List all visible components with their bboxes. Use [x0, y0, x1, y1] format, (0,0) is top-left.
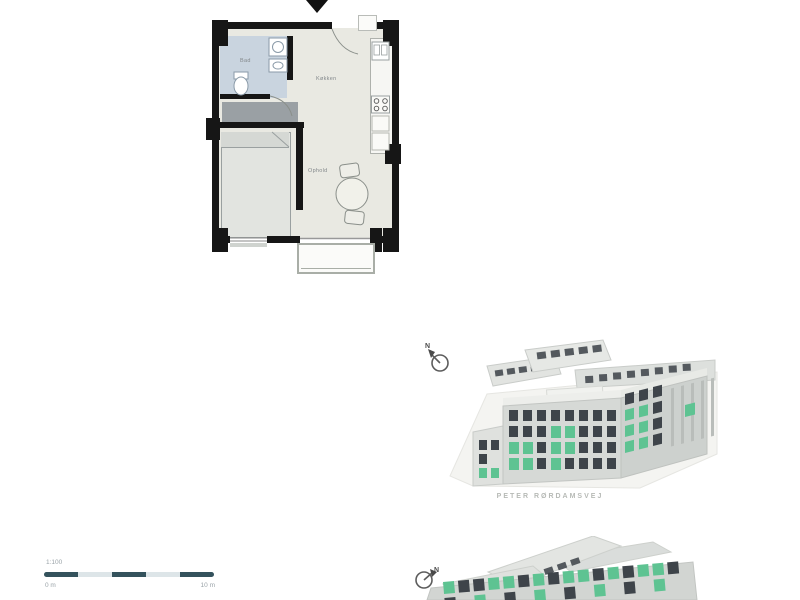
page: Bad Køkken Ophold: [0, 0, 800, 600]
scale-segment: [146, 572, 180, 577]
bathroom-wall: [220, 94, 270, 99]
pier-right-mid: [385, 144, 401, 164]
scale-bar: 1:100 0 m 10 m: [44, 559, 216, 597]
scale-zero-label: 0 m: [45, 582, 56, 589]
scale-segment: [44, 572, 78, 577]
wall-top: [214, 22, 332, 29]
bedroom-partition-wall: [296, 122, 303, 210]
front-facade: [503, 398, 621, 484]
scale-ratio-label: 1:100: [46, 559, 62, 566]
bathroom: [220, 36, 287, 98]
balcony: [297, 243, 375, 274]
living-label: Ophold: [308, 168, 328, 174]
scale-end-label: 10 m: [201, 582, 215, 589]
balcony-railing: [301, 268, 371, 269]
scale-bar-graphic: [44, 572, 214, 577]
bathroom-wall: [287, 36, 293, 80]
scale-segment: [78, 572, 112, 577]
annex-block: [473, 426, 503, 486]
aerial-view-top: N: [425, 336, 725, 500]
svg-text:N: N: [434, 567, 439, 574]
entry-niche: [358, 15, 377, 31]
window-sill: [230, 243, 267, 247]
entrance-arrow-icon: [303, 0, 331, 14]
north-compass-icon: N: [425, 343, 448, 371]
scale-segment: [112, 572, 146, 577]
north-compass-icon: N: [416, 567, 439, 588]
pier-left-mid: [206, 118, 220, 140]
bathroom-label: Bad: [240, 58, 251, 64]
aerial-view-bottom: N: [403, 536, 703, 600]
floor-plan: Bad Køkken Ophold: [212, 14, 402, 294]
bedroom-wall: [214, 122, 304, 128]
bed-pillow: [221, 132, 289, 148]
wardrobe: [222, 102, 298, 122]
scale-segment: [180, 572, 214, 577]
kitchen-label: Køkken: [316, 76, 336, 82]
wall-bottom: [267, 236, 300, 243]
wall-bottom: [214, 236, 230, 243]
street-label: PETER RØRDAMSVEJ: [430, 493, 670, 500]
kitchen-counter: [370, 38, 393, 154]
svg-text:N: N: [425, 343, 430, 350]
wall-right: [392, 22, 399, 252]
